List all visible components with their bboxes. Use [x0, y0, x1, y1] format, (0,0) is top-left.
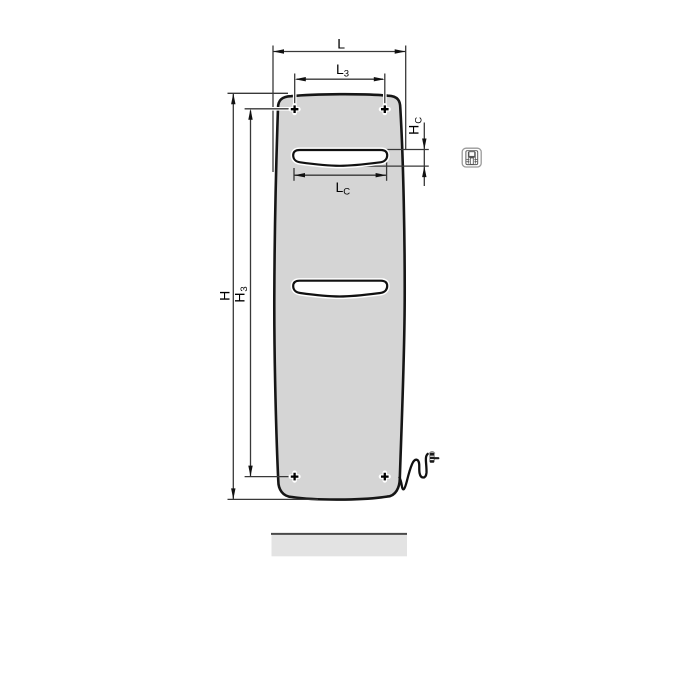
svg-text:H: H: [217, 291, 233, 301]
svg-text:L: L: [337, 35, 345, 51]
